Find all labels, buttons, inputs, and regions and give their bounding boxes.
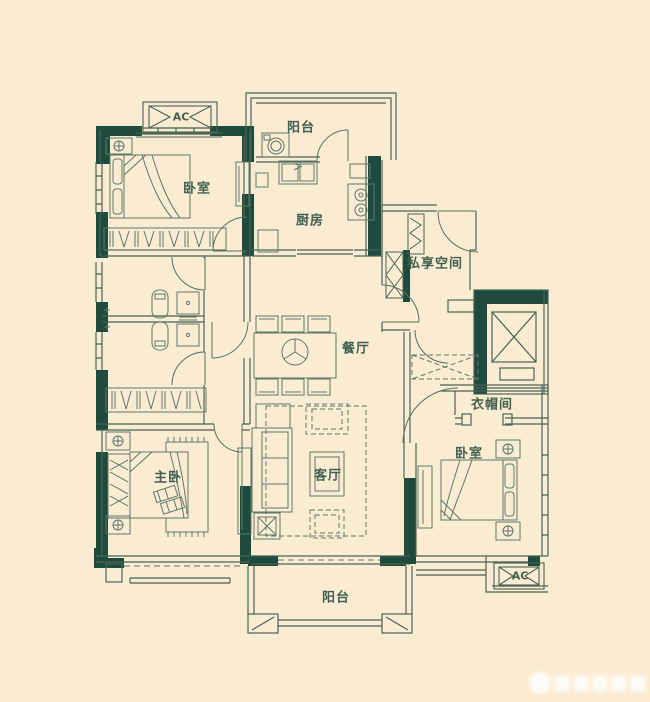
ac-label-bottom: AC xyxy=(512,570,529,583)
room-label-living: 客厅 xyxy=(314,465,342,484)
wardrobe-icon-top xyxy=(104,228,226,250)
wardrobe-icon-bottom xyxy=(106,388,206,412)
room-label-bedroom-right: 卧室 xyxy=(455,443,483,462)
room-label-private-space: 私享空间 xyxy=(407,253,463,272)
stove-icon xyxy=(256,164,374,252)
watermark-logo-icon xyxy=(529,672,551,694)
room-label-balcony-top: 阳台 xyxy=(287,117,315,136)
room-label-dining: 餐厅 xyxy=(342,338,370,357)
dining-table-icon xyxy=(254,316,336,395)
room-label-kitchen: 厨房 xyxy=(296,210,324,229)
room-label-master-bedroom: 主卧 xyxy=(154,467,182,486)
room-label-cloakroom: 衣帽间 xyxy=(471,394,513,413)
bed-icon-top-bedroom xyxy=(106,138,249,218)
room-label-bedroom-top-left: 卧室 xyxy=(183,178,211,197)
closet-icon xyxy=(412,355,478,379)
floor-plan: 卧室 阳台 厨房 私享空间 餐厅 衣帽间 卧室 主卧 客厅 阳台 AC AC xyxy=(0,0,650,702)
kitchen-sink-icon xyxy=(279,161,317,184)
ac-label-top: AC xyxy=(173,111,190,124)
watermark xyxy=(529,672,646,694)
sofa-icon xyxy=(252,404,292,539)
room-label-balcony-bottom: 阳台 xyxy=(322,587,350,606)
washing-machine-icon xyxy=(262,133,289,157)
elevator-icon xyxy=(492,312,536,380)
toilet-icon xyxy=(152,290,168,350)
